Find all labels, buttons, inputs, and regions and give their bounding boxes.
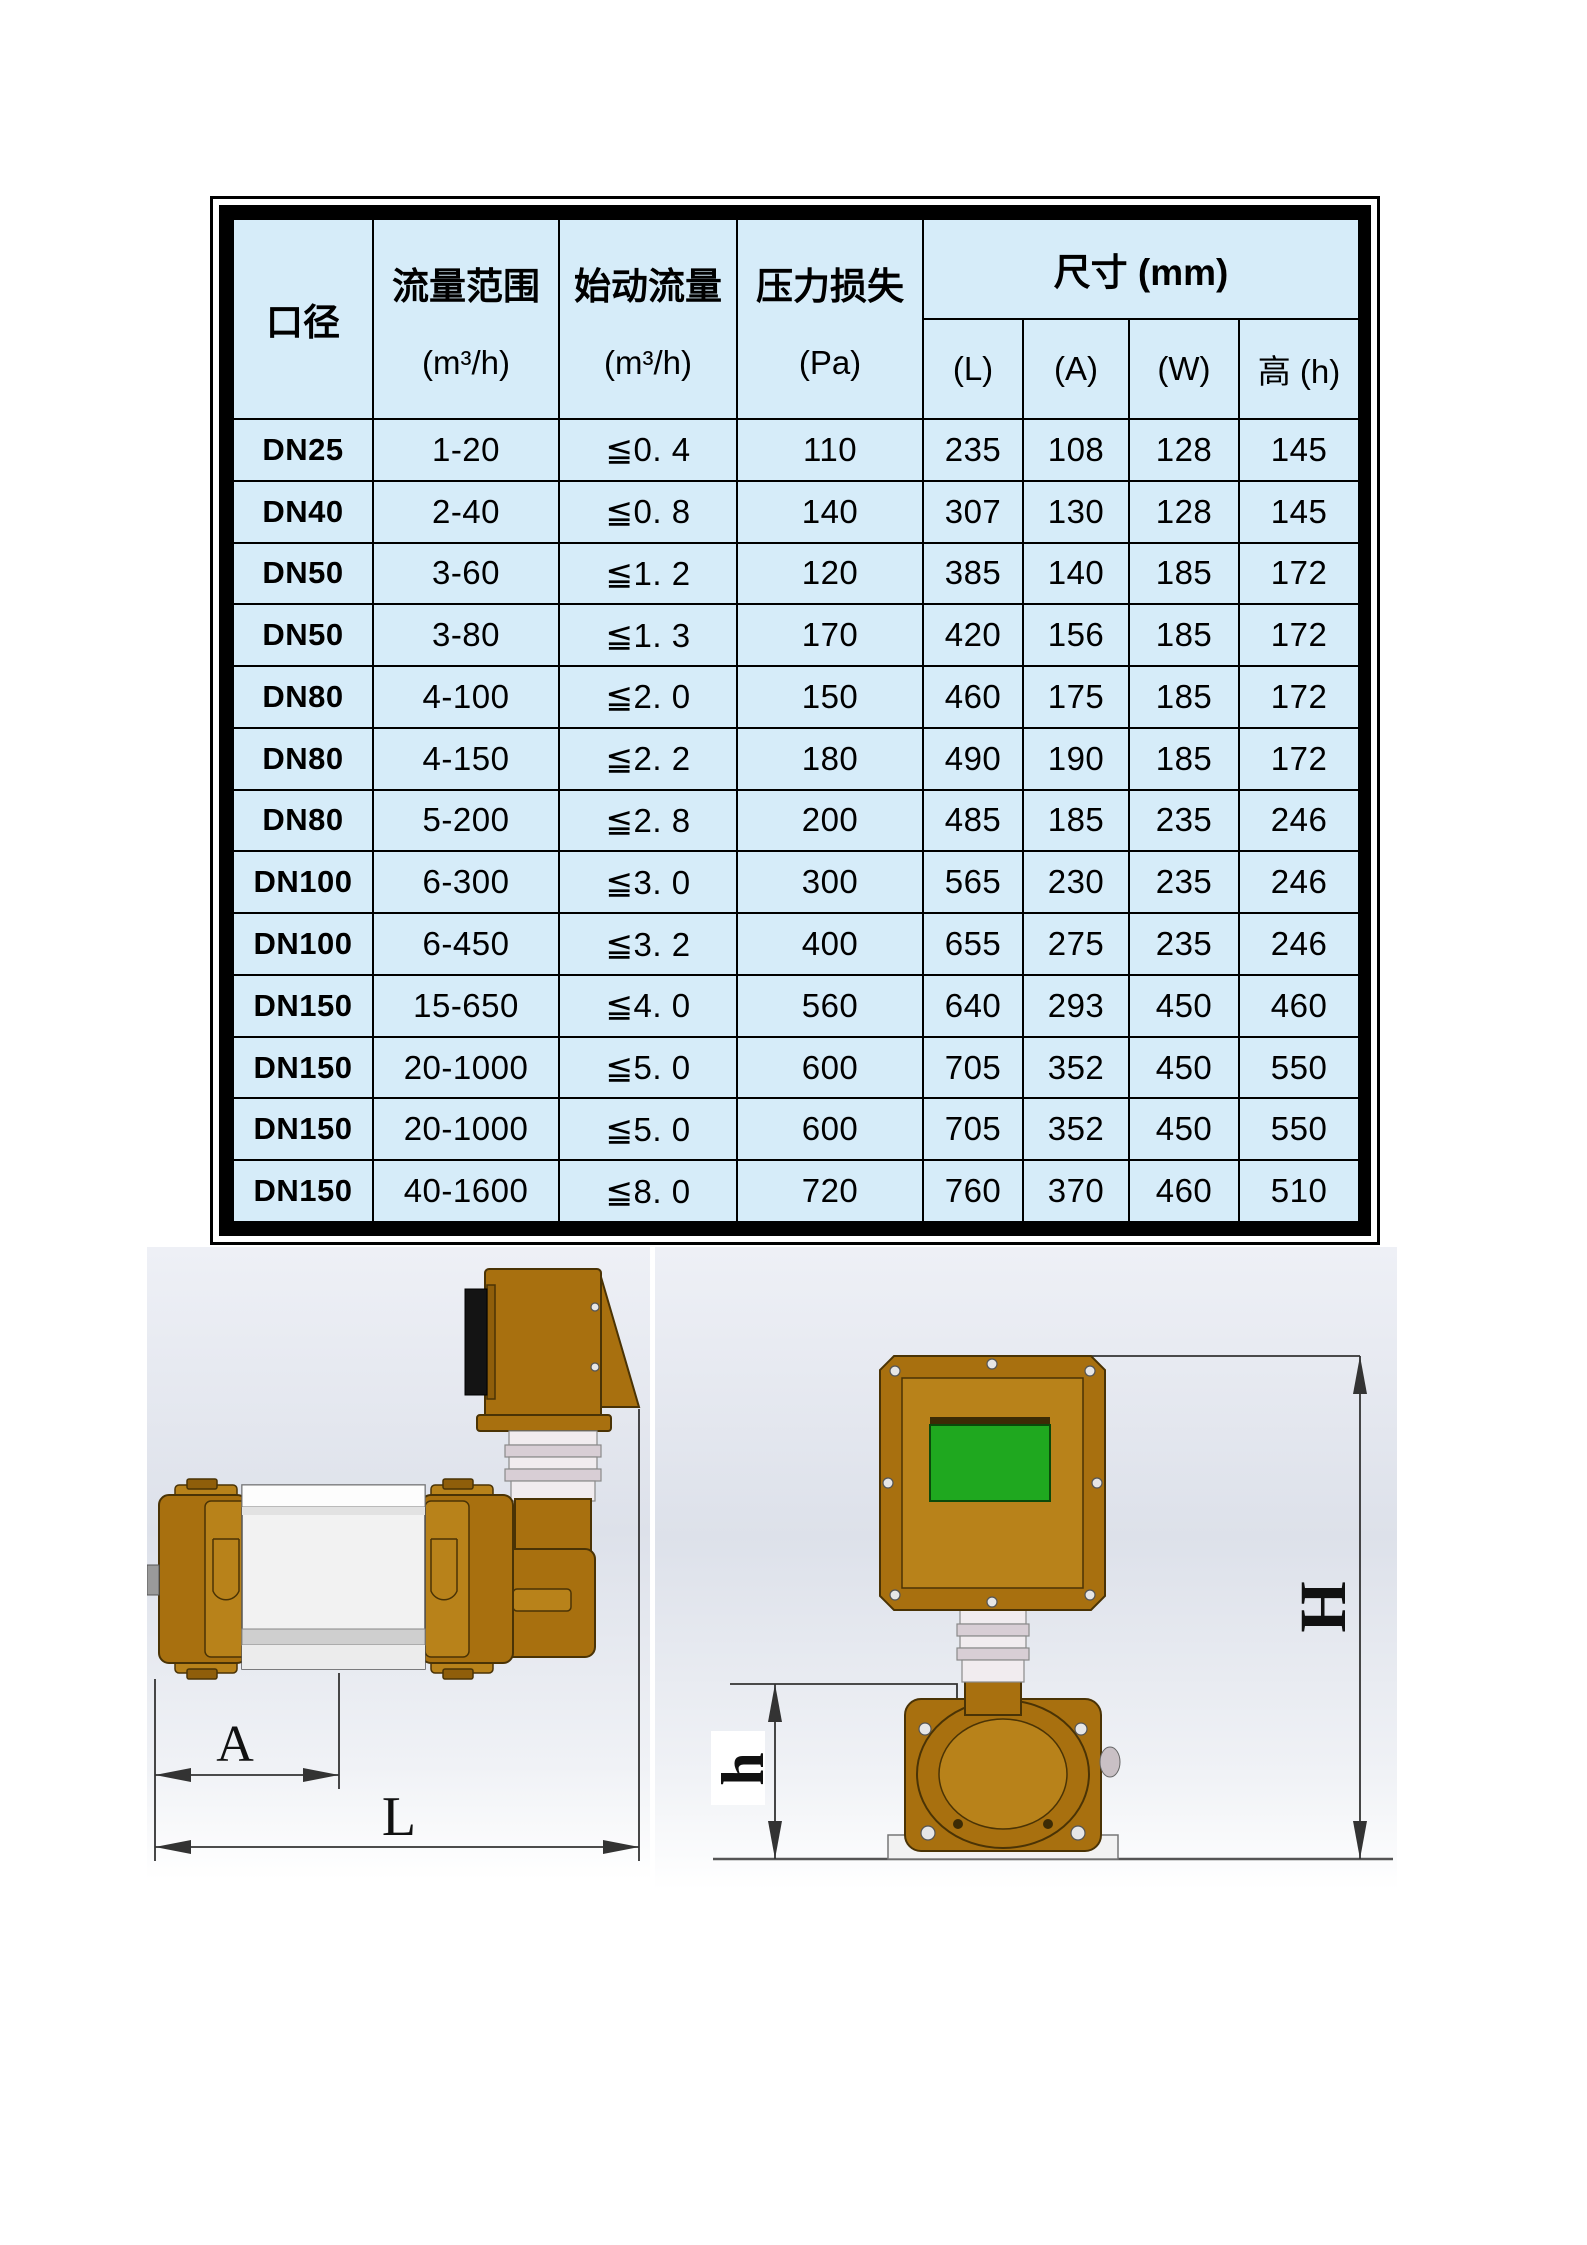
steel-ring	[960, 1610, 1026, 1624]
col-subheader-L: (L)	[923, 319, 1023, 419]
head-base-flange	[477, 1415, 611, 1431]
table-cell: 450	[1129, 1098, 1239, 1160]
table-cell: 128	[1129, 481, 1239, 543]
table-cell: 2-40	[373, 481, 559, 543]
table-cell: 400	[737, 913, 923, 975]
table-cell: DN150	[233, 1160, 373, 1222]
table-cell: 145	[1239, 419, 1359, 481]
table-cell: DN80	[233, 728, 373, 790]
table-cell: 15-650	[373, 975, 559, 1037]
cylinder-band	[242, 1645, 425, 1669]
table-cell: 172	[1239, 604, 1359, 666]
table-cell: 235	[923, 419, 1023, 481]
screw-icon	[591, 1303, 599, 1311]
steel-ring	[509, 1457, 597, 1469]
table-cell: 307	[923, 481, 1023, 543]
screw-icon	[919, 1723, 931, 1735]
table-row: DN15040-1600≦8. 0720760370460510	[233, 1160, 1359, 1222]
table-cell: 5-200	[373, 790, 559, 852]
table-cell: 760	[923, 1160, 1023, 1222]
col-header-flow-range: 流量范围 (m³/h)	[373, 219, 559, 419]
table-cell: ≦1. 2	[559, 543, 737, 605]
table-cell: ≦2. 8	[559, 790, 737, 852]
screw-icon	[921, 1826, 935, 1840]
table-cell: 185	[1129, 666, 1239, 728]
dim-label-A: A	[216, 1716, 254, 1773]
screw-icon	[1085, 1366, 1095, 1376]
col-header-dimensions: 尺寸 (mm)	[923, 219, 1359, 319]
table-cell: DN25	[233, 419, 373, 481]
table-cell: 108	[1023, 419, 1129, 481]
table-cell: 370	[1023, 1160, 1129, 1222]
col-header-diameter: 口径	[233, 219, 373, 419]
table-cell: 172	[1239, 666, 1359, 728]
table-cell: 4-100	[373, 666, 559, 728]
steel-ring	[957, 1648, 1029, 1660]
neck-pipe	[965, 1677, 1021, 1715]
table-cell: 185	[1129, 543, 1239, 605]
table-cell: 185	[1129, 728, 1239, 790]
table-cell: 185	[1129, 604, 1239, 666]
table-cell: DN40	[233, 481, 373, 543]
display-head-front	[880, 1356, 1105, 1610]
screw-icon	[883, 1478, 893, 1488]
bolt-icon	[1043, 1819, 1053, 1829]
front-view-drawing: h H	[655, 1247, 1397, 1890]
col-header-start-flow: 始动流量 (m³/h)	[559, 219, 737, 419]
table-cell: ≦3. 0	[559, 851, 737, 913]
table-cell: ≦2. 2	[559, 728, 737, 790]
table-row: DN805-200≦2. 8200485185235246	[233, 790, 1359, 852]
table-cell: ≦5. 0	[559, 1098, 737, 1160]
steel-ring	[962, 1660, 1024, 1682]
bolt-icon	[953, 1819, 963, 1829]
table-cell: 156	[1023, 604, 1129, 666]
col-header-pressure-loss: 压力损失 (Pa)	[737, 219, 923, 419]
meter-body-front	[905, 1699, 1120, 1851]
table-row: DN15020-1000≦5. 0600705352450550	[233, 1037, 1359, 1099]
table-cell: 300	[737, 851, 923, 913]
table-cell: 170	[737, 604, 923, 666]
adapter-stack-side	[499, 1431, 601, 1657]
table-cell: 705	[923, 1098, 1023, 1160]
table-cell: 180	[737, 728, 923, 790]
table-cell: 172	[1239, 543, 1359, 605]
spec-table-border: 口径 流量范围 (m³/h) 始动流量 (m³/h)	[219, 205, 1371, 1236]
table-cell: 640	[923, 975, 1023, 1037]
flange-bolt	[443, 1479, 473, 1489]
table-cell: 200	[737, 790, 923, 852]
cylinder-band	[242, 1485, 425, 1507]
table-cell: 490	[923, 728, 1023, 790]
table-cell: 128	[1129, 419, 1239, 481]
side-port	[1100, 1747, 1120, 1777]
screw-icon	[987, 1359, 997, 1369]
table-cell: ≦4. 0	[559, 975, 737, 1037]
table-cell: 140	[1023, 543, 1129, 605]
col-header-diameter-label: 口径	[266, 302, 340, 343]
table-cell: 275	[1023, 913, 1129, 975]
steel-ring	[509, 1431, 597, 1445]
table-cell: 460	[1129, 1160, 1239, 1222]
dim-label-H: H	[1287, 1581, 1360, 1632]
table-cell: 385	[923, 543, 1023, 605]
table-cell: 150	[737, 666, 923, 728]
table-cell: 6-300	[373, 851, 559, 913]
table-cell: ≦0. 8	[559, 481, 737, 543]
meter-cylinder	[242, 1485, 425, 1669]
screw-icon	[591, 1363, 599, 1371]
table-cell: 235	[1129, 851, 1239, 913]
front-cover-inner	[939, 1719, 1067, 1829]
table-cell: 140	[737, 481, 923, 543]
table-cell: ≦5. 0	[559, 1037, 737, 1099]
col-subheader-W: (W)	[1129, 319, 1239, 419]
table-cell: DN150	[233, 1098, 373, 1160]
table-cell: 110	[737, 419, 923, 481]
table-cell: 655	[923, 913, 1023, 975]
head-box-side	[485, 1269, 601, 1421]
table-row: DN15020-1000≦5. 0600705352450550	[233, 1098, 1359, 1160]
spec-table: 口径 流量范围 (m³/h) 始动流量 (m³/h)	[210, 196, 1380, 1245]
dim-label-L: L	[382, 1786, 416, 1848]
steel-ring	[957, 1624, 1029, 1636]
table-cell: DN50	[233, 543, 373, 605]
table-cell: 450	[1129, 975, 1239, 1037]
table-cell: 235	[1129, 913, 1239, 975]
dim-label-h: h	[710, 1752, 776, 1785]
display-mount	[487, 1285, 495, 1399]
table-cell: DN100	[233, 913, 373, 975]
inlet-stub	[147, 1565, 159, 1595]
screw-icon	[1092, 1478, 1102, 1488]
col-subheader-height: 高 (h)	[1239, 319, 1359, 419]
table-row: DN402-40≦0. 8140307130128145	[233, 481, 1359, 543]
table-cell: DN150	[233, 1037, 373, 1099]
table-row: DN1006-450≦3. 2400655275235246	[233, 913, 1359, 975]
table-cell: 190	[1023, 728, 1129, 790]
left-flange	[147, 1479, 249, 1679]
side-view-drawing: A L	[147, 1247, 650, 1880]
start-flow-unit: (m³/h)	[560, 344, 736, 382]
flowmeter-spec-table: 口径 流量范围 (m³/h) 始动流量 (m³/h)	[232, 218, 1360, 1223]
pressure-loss-unit: (Pa)	[738, 344, 922, 382]
table-cell: 20-1000	[373, 1037, 559, 1099]
table-cell: DN50	[233, 604, 373, 666]
table-cell: 175	[1023, 666, 1129, 728]
table-cell: 1-20	[373, 419, 559, 481]
table-row: DN251-20≦0. 4110235108128145	[233, 419, 1359, 481]
screw-icon	[890, 1590, 900, 1600]
table-cell: ≦0. 4	[559, 419, 737, 481]
display-panel-side	[465, 1289, 487, 1395]
table-cell: ≦1. 3	[559, 604, 737, 666]
table-cell: 20-1000	[373, 1098, 559, 1160]
table-cell: 3-80	[373, 604, 559, 666]
table-row: DN15015-650≦4. 0560640293450460	[233, 975, 1359, 1037]
table-cell: 600	[737, 1037, 923, 1099]
flange-bolt	[187, 1669, 217, 1679]
table-cell: 246	[1239, 913, 1359, 975]
table-cell: 145	[1239, 481, 1359, 543]
flange-bolt	[443, 1669, 473, 1679]
screw-icon	[987, 1597, 997, 1607]
table-cell: 565	[923, 851, 1023, 913]
table-cell: 185	[1023, 790, 1129, 852]
steel-ring	[505, 1469, 601, 1481]
screw-icon	[1085, 1590, 1095, 1600]
table-row: DN804-100≦2. 0150460175185172	[233, 666, 1359, 728]
table-cell: 3-60	[373, 543, 559, 605]
table-cell: DN100	[233, 851, 373, 913]
table-cell: ≦2. 0	[559, 666, 737, 728]
flow-range-unit: (m³/h)	[374, 344, 558, 382]
lcd-display	[930, 1425, 1050, 1501]
start-flow-title: 始动流量	[560, 256, 736, 310]
steel-ring	[505, 1445, 601, 1457]
table-cell: 352	[1023, 1037, 1129, 1099]
flange-bolt	[187, 1479, 217, 1489]
table-cell: 40-1600	[373, 1160, 559, 1222]
table-cell: 460	[923, 666, 1023, 728]
screw-icon	[1071, 1826, 1085, 1840]
screw-icon	[1075, 1723, 1087, 1735]
table-cell: DN80	[233, 790, 373, 852]
table-cell: 600	[737, 1098, 923, 1160]
adapter-stack-front	[957, 1610, 1029, 1715]
table-cell: ≦3. 2	[559, 913, 737, 975]
table-cell: 420	[923, 604, 1023, 666]
table-cell: 120	[737, 543, 923, 605]
table-cell: 510	[1239, 1160, 1359, 1222]
table-cell: 550	[1239, 1037, 1359, 1099]
table-cell: 246	[1239, 790, 1359, 852]
table-cell: 293	[1023, 975, 1129, 1037]
table-cell: 460	[1239, 975, 1359, 1037]
table-cell: 130	[1023, 481, 1129, 543]
table-row: DN804-150≦2. 2180490190185172	[233, 728, 1359, 790]
table-cell: 246	[1239, 851, 1359, 913]
table-row: DN1006-300≦3. 0300565230235246	[233, 851, 1359, 913]
table-cell: 172	[1239, 728, 1359, 790]
table-cell: 235	[1129, 790, 1239, 852]
table-cell: DN150	[233, 975, 373, 1037]
table-cell: ≦8. 0	[559, 1160, 737, 1222]
table-cell: 4-150	[373, 728, 559, 790]
elbow-slot	[513, 1589, 571, 1611]
table-cell: 485	[923, 790, 1023, 852]
cylinder-band	[242, 1629, 425, 1645]
right-flange	[421, 1479, 513, 1679]
table-cell: 560	[737, 975, 923, 1037]
table-cell: 6-450	[373, 913, 559, 975]
table-cell: 705	[923, 1037, 1023, 1099]
table-cell: 230	[1023, 851, 1129, 913]
table-cell: DN80	[233, 666, 373, 728]
screw-icon	[890, 1366, 900, 1376]
table-cell: 450	[1129, 1037, 1239, 1099]
table-cell: 352	[1023, 1098, 1129, 1160]
cylinder-band	[242, 1507, 425, 1515]
spec-table-body: DN251-20≦0. 4110235108128145DN402-40≦0. …	[233, 419, 1359, 1222]
col-subheader-A: (A)	[1023, 319, 1129, 419]
pressure-loss-title: 压力损失	[738, 256, 922, 310]
table-row: DN503-60≦1. 2120385140185172	[233, 543, 1359, 605]
table-cell: 550	[1239, 1098, 1359, 1160]
table-row: DN503-80≦1. 3170420156185172	[233, 604, 1359, 666]
steel-ring	[960, 1636, 1026, 1648]
flow-range-title: 流量范围	[374, 256, 558, 310]
table-cell: 720	[737, 1160, 923, 1222]
